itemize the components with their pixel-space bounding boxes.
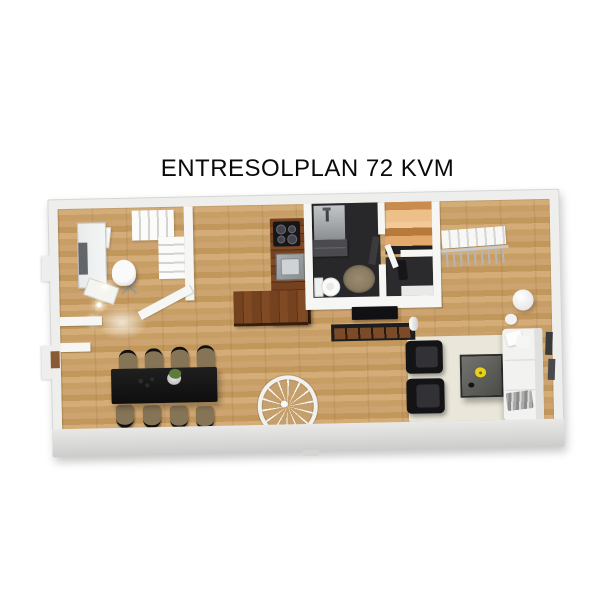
vestibule-wall-stub bbox=[60, 343, 90, 353]
floorplan-screenshot: ENTRESOLPLAN 72 KVM bbox=[0, 0, 615, 615]
office-chair bbox=[112, 260, 137, 286]
front-door bbox=[51, 351, 60, 368]
wall-frame bbox=[545, 332, 553, 355]
flower-center bbox=[479, 371, 482, 374]
shower-head bbox=[326, 210, 329, 222]
sofa-pillow bbox=[515, 334, 530, 348]
burner bbox=[276, 224, 286, 234]
burner bbox=[288, 225, 296, 233]
stairwell bbox=[435, 226, 510, 271]
tv bbox=[352, 306, 398, 320]
white-vase bbox=[409, 317, 418, 331]
burner bbox=[287, 234, 297, 244]
shower bbox=[314, 205, 346, 242]
staircase-lower-flight bbox=[158, 237, 185, 280]
hall-threshold bbox=[401, 285, 433, 296]
dining-chair bbox=[170, 346, 188, 369]
floorplan-3d bbox=[47, 189, 564, 458]
sauna-hall-divider bbox=[400, 249, 432, 257]
floor-light bbox=[97, 302, 102, 307]
dining-chair bbox=[143, 405, 161, 428]
sauna bbox=[384, 201, 432, 254]
south-wall-notch bbox=[303, 450, 319, 456]
floor-light bbox=[102, 284, 107, 289]
table-bowl bbox=[138, 378, 143, 383]
kitchen-sink-basin bbox=[281, 258, 300, 275]
armchair-cushion bbox=[416, 346, 438, 367]
dining-table bbox=[111, 367, 218, 404]
armchair-cushion bbox=[416, 384, 439, 407]
page-title: ENTRESOLPLAN 72 KVM bbox=[0, 155, 615, 183]
table-bowl bbox=[150, 377, 154, 381]
dining-chair bbox=[196, 345, 214, 368]
left-wall-bump bbox=[42, 255, 52, 281]
shower-head bbox=[323, 207, 331, 210]
bath-sauna-divider bbox=[379, 264, 387, 298]
office-bottom-wall bbox=[60, 316, 102, 326]
desk-monitor bbox=[78, 243, 88, 275]
table-bowl bbox=[145, 383, 149, 387]
cooktop bbox=[273, 221, 301, 247]
tv-bench-doors bbox=[334, 327, 412, 340]
dining-chair bbox=[116, 405, 134, 428]
kitchen-counter-horizontal bbox=[233, 290, 308, 327]
bath-sauna-divider bbox=[377, 202, 385, 234]
wall-frame bbox=[548, 359, 556, 380]
burner bbox=[277, 235, 285, 243]
gray-throw bbox=[506, 390, 534, 411]
dining-chair bbox=[170, 405, 188, 428]
